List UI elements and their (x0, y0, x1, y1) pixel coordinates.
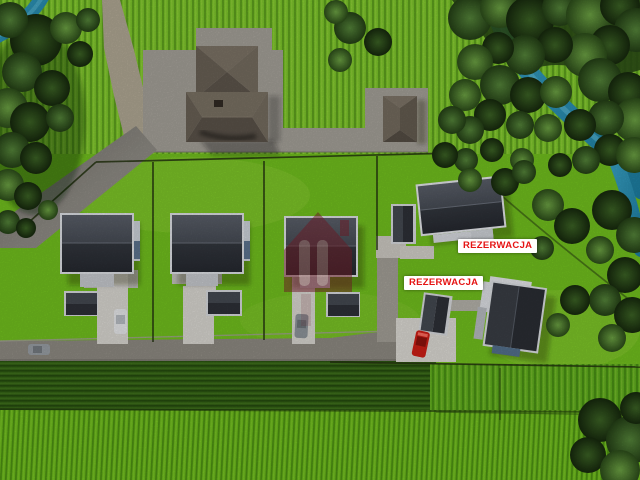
reservation-badge-plot5: REZERWACJA (404, 276, 483, 290)
reservation-badge-plot4: REZERWACJA (458, 239, 537, 253)
site-plan-render (0, 0, 640, 480)
aerial-site-plan: REZERWACJA REZERWACJA (0, 0, 640, 480)
photo-grain (0, 0, 640, 480)
